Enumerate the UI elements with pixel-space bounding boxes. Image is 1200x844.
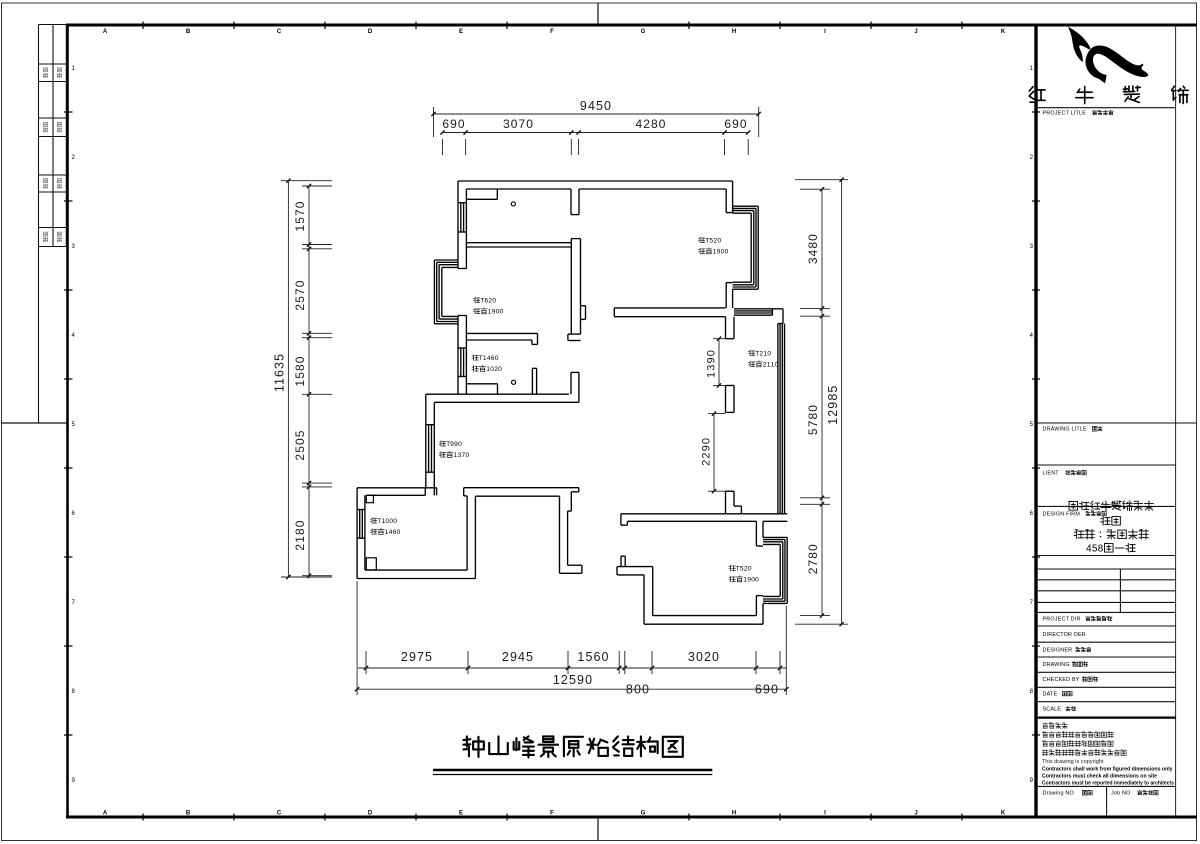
svg-text:3070: 3070 xyxy=(503,117,534,131)
svg-text:G: G xyxy=(641,29,646,35)
svg-text:DIRECTOR DER: DIRECTOR DER xyxy=(1043,632,1086,638)
svg-text:1390: 1390 xyxy=(706,349,718,378)
svg-text:1580: 1580 xyxy=(293,355,307,386)
svg-text:2505: 2505 xyxy=(293,429,307,460)
svg-text:H: H xyxy=(732,811,736,817)
svg-text:This drawing is copyright: This drawing is copyright xyxy=(1042,759,1104,765)
svg-text:DRAWING: DRAWING xyxy=(1043,662,1070,668)
svg-text:K: K xyxy=(1001,811,1006,817)
svg-text:0: 0 xyxy=(748,566,752,573)
svg-text:DRAWING LITLE: DRAWING LITLE xyxy=(1043,427,1088,433)
svg-text:Contractors must be reported i: Contractors must be reported immediately… xyxy=(1042,781,1174,787)
svg-text:Contractors must check all dim: Contractors must check all dimensions on… xyxy=(1042,774,1157,780)
svg-text:3020: 3020 xyxy=(688,650,720,664)
svg-text:F: F xyxy=(550,29,554,35)
svg-text:J: J xyxy=(914,811,917,817)
svg-text:A: A xyxy=(103,29,108,35)
svg-text:2945: 2945 xyxy=(502,650,534,664)
svg-text:C: C xyxy=(277,811,282,817)
svg-text:2180: 2180 xyxy=(293,519,307,550)
svg-text:690: 690 xyxy=(755,683,779,697)
svg-text:PROJECT LITLE: PROJECT LITLE xyxy=(1043,111,1087,117)
svg-text:B: B xyxy=(186,811,191,817)
svg-text:PROJECT DIR: PROJECT DIR xyxy=(1043,617,1081,623)
svg-text:K: K xyxy=(1001,29,1006,35)
svg-text:A: A xyxy=(103,811,108,817)
svg-text:0: 0 xyxy=(393,518,397,525)
svg-text:0: 0 xyxy=(492,298,496,305)
svg-text:DESIGNER: DESIGNER xyxy=(1043,648,1073,654)
svg-text:LIENT: LIENT xyxy=(1043,471,1060,477)
svg-text:CHECKED BY: CHECKED BY xyxy=(1043,677,1080,683)
svg-text:DESIGN FIRM: DESIGN FIRM xyxy=(1043,512,1081,518)
svg-text:B: B xyxy=(186,29,191,35)
svg-text:0: 0 xyxy=(717,238,721,245)
svg-text:1570: 1570 xyxy=(293,200,307,231)
svg-text:J: J xyxy=(914,29,917,35)
svg-text:0: 0 xyxy=(775,362,779,369)
svg-text:9450: 9450 xyxy=(580,99,612,113)
svg-text:8: 8 xyxy=(1098,544,1103,555)
svg-text:0: 0 xyxy=(458,441,462,448)
svg-text:2570: 2570 xyxy=(293,279,307,310)
svg-text:2290: 2290 xyxy=(701,437,713,466)
svg-text:0: 0 xyxy=(767,351,771,358)
svg-text:SCALE: SCALE xyxy=(1043,707,1062,713)
svg-text:2975: 2975 xyxy=(401,650,433,664)
svg-text:12985: 12985 xyxy=(826,385,840,425)
svg-text:D: D xyxy=(368,29,373,35)
svg-text:0: 0 xyxy=(500,309,504,316)
svg-text:800: 800 xyxy=(626,683,650,697)
svg-text:12590: 12590 xyxy=(553,673,593,687)
svg-text:Drawing NO: Drawing NO xyxy=(1043,791,1074,797)
svg-text:2780: 2780 xyxy=(806,543,820,574)
svg-text:5780: 5780 xyxy=(806,404,820,435)
svg-text:11635: 11635 xyxy=(273,353,287,392)
svg-text:E: E xyxy=(459,29,463,35)
svg-text:0: 0 xyxy=(755,577,759,584)
svg-text:0: 0 xyxy=(498,366,502,373)
svg-text:690: 690 xyxy=(442,117,465,131)
svg-text:F: F xyxy=(550,811,554,817)
svg-text:Contractors shall work from fi: Contractors shall work from figured dime… xyxy=(1042,767,1173,773)
svg-text:H: H xyxy=(732,29,736,35)
svg-text:G: G xyxy=(641,811,646,817)
svg-text:D: D xyxy=(368,811,373,817)
svg-text:3480: 3480 xyxy=(806,233,820,264)
svg-text:E: E xyxy=(459,811,463,817)
svg-text:0: 0 xyxy=(725,249,729,256)
svg-text:0: 0 xyxy=(495,355,499,362)
svg-text:Job NO: Job NO xyxy=(1111,791,1130,797)
svg-text:1560: 1560 xyxy=(577,650,609,664)
svg-text:0: 0 xyxy=(465,452,469,459)
svg-text:4280: 4280 xyxy=(635,117,666,131)
svg-text:DATE: DATE xyxy=(1043,692,1058,698)
svg-text:0: 0 xyxy=(397,529,401,536)
svg-text:690: 690 xyxy=(724,117,747,131)
svg-text:C: C xyxy=(277,29,282,35)
